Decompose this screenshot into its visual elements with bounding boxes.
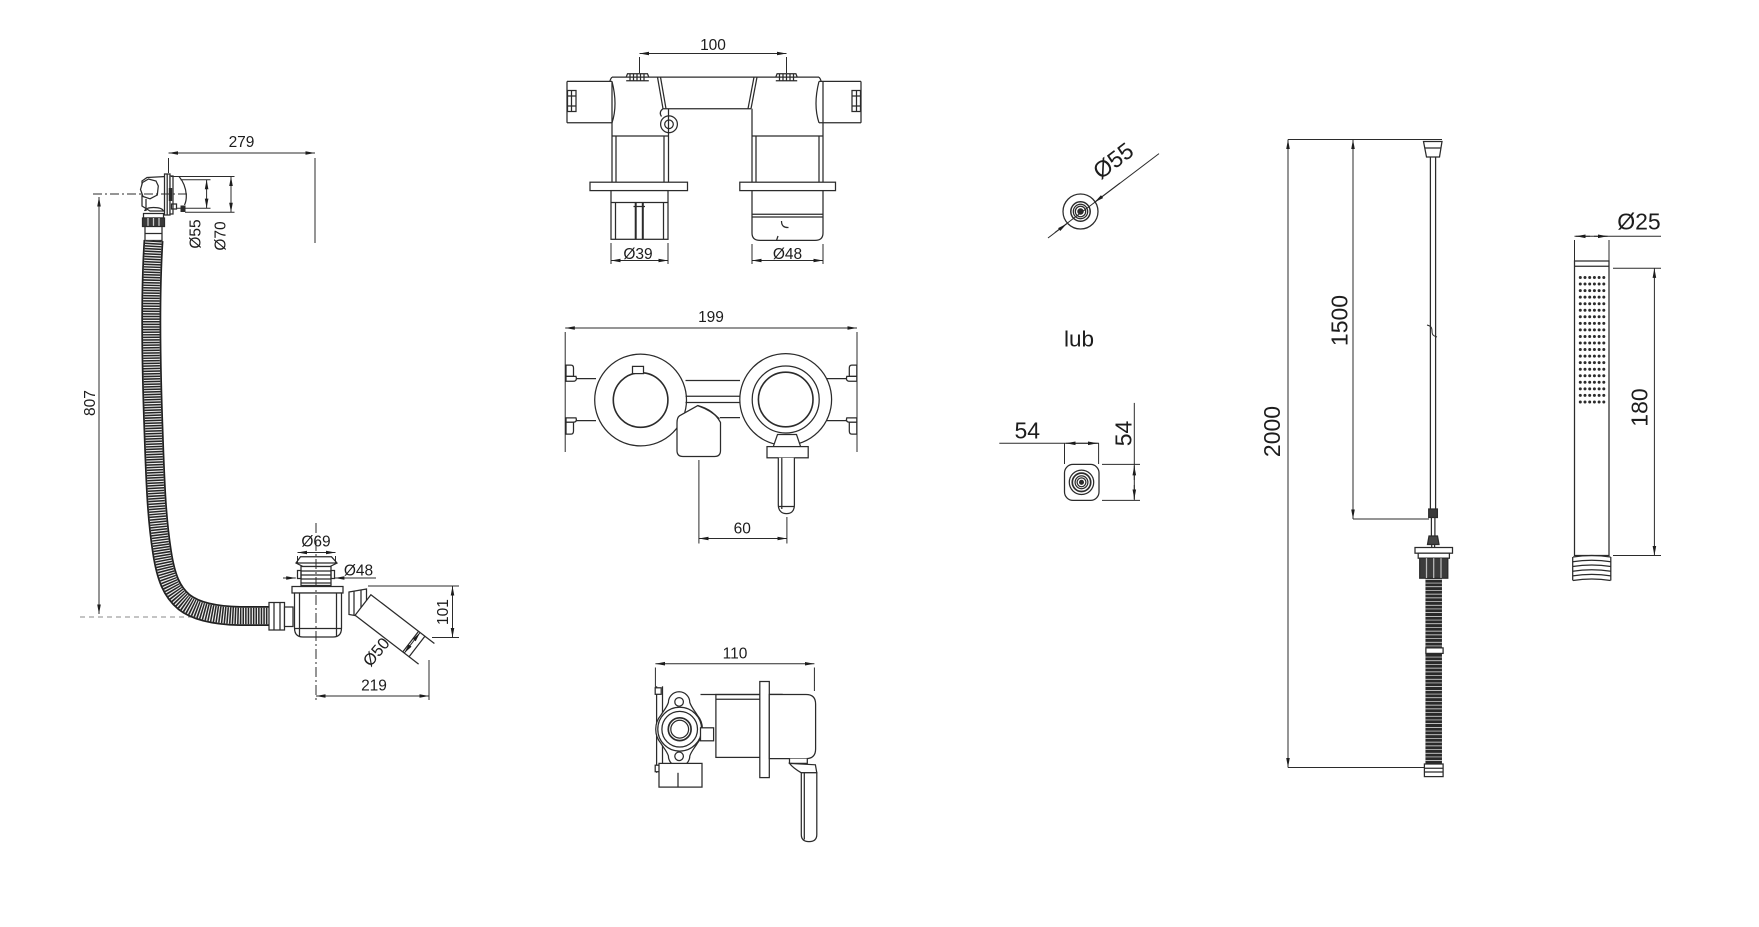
svg-text:Ø48: Ø48 bbox=[773, 246, 802, 263]
svg-text:Ø55: Ø55 bbox=[188, 219, 205, 248]
svg-text:Ø69: Ø69 bbox=[301, 534, 330, 551]
svg-text:101: 101 bbox=[435, 599, 452, 625]
svg-text:807: 807 bbox=[82, 390, 99, 416]
svg-text:2000: 2000 bbox=[1259, 406, 1285, 457]
svg-text:100: 100 bbox=[700, 37, 726, 54]
svg-text:Ø55: Ø55 bbox=[1088, 137, 1138, 184]
svg-text:1500: 1500 bbox=[1327, 295, 1353, 346]
svg-text:Ø25: Ø25 bbox=[1617, 209, 1660, 235]
svg-text:110: 110 bbox=[723, 646, 748, 663]
svg-text:219: 219 bbox=[361, 678, 387, 695]
svg-text:199: 199 bbox=[698, 309, 724, 326]
svg-text:lub: lub bbox=[1064, 327, 1094, 352]
svg-text:54: 54 bbox=[1111, 421, 1137, 447]
svg-text:54: 54 bbox=[1015, 418, 1041, 444]
svg-text:Ø48: Ø48 bbox=[344, 563, 373, 580]
svg-text:279: 279 bbox=[229, 134, 255, 151]
svg-text:60: 60 bbox=[734, 521, 752, 538]
svg-text:Ø70: Ø70 bbox=[213, 221, 230, 251]
svg-text:180: 180 bbox=[1627, 388, 1653, 426]
svg-text:Ø39: Ø39 bbox=[623, 246, 652, 263]
